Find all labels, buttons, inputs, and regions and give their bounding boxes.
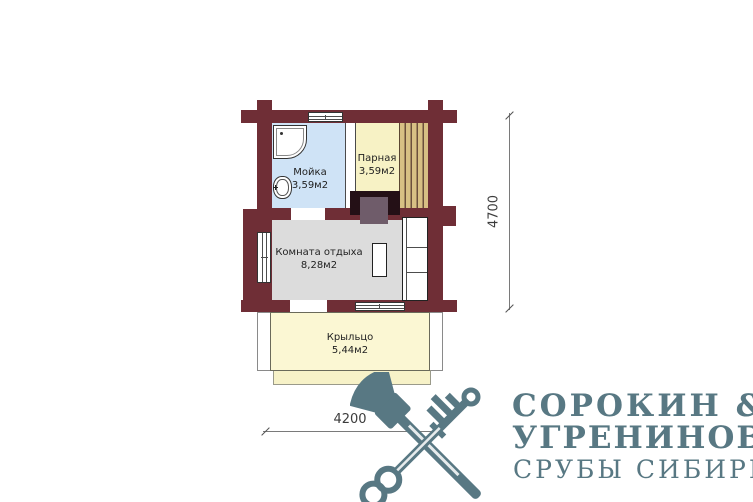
porch-side-left bbox=[257, 312, 271, 371]
wall-top bbox=[241, 110, 457, 123]
room-area: 5,44м2 bbox=[327, 344, 374, 357]
door-opening-moyka bbox=[291, 208, 325, 220]
room-label-moyka: Мойка 3,59м2 bbox=[292, 166, 328, 192]
room-area: 8,28м2 bbox=[275, 259, 362, 272]
door-opening-porch bbox=[290, 300, 327, 312]
log-strip-left-outer bbox=[243, 209, 257, 300]
window-left bbox=[257, 232, 271, 283]
room-name: Крыльцо bbox=[327, 331, 374, 344]
logo-line-1: СОРОКИН & bbox=[512, 388, 753, 424]
bench-planks bbox=[399, 123, 428, 208]
table bbox=[372, 243, 387, 277]
sink bbox=[273, 176, 292, 199]
room-area: 3,59м2 bbox=[292, 179, 328, 192]
dimension-height-label: 4700 bbox=[487, 180, 502, 244]
logo-line-3: СРУБЫ СИБИРИ bbox=[513, 455, 753, 484]
room-label-komnata: Комната отдыха 8,28м2 bbox=[275, 246, 362, 272]
log-end-mid-right bbox=[443, 206, 456, 226]
bed bbox=[402, 217, 428, 301]
dimension-line-vertical bbox=[509, 113, 510, 310]
porch-side-right bbox=[429, 312, 443, 371]
logo-line-2: УГРЕНИНОВ bbox=[512, 420, 753, 456]
room-name: Мойка bbox=[292, 166, 328, 179]
window-bottom bbox=[355, 302, 405, 311]
room-name: Комната отдыха bbox=[275, 246, 362, 259]
room-area: 3,59м2 bbox=[358, 165, 397, 178]
floor-plan-canvas: 4700 4200 bbox=[0, 0, 753, 502]
wall-right bbox=[428, 110, 443, 312]
room-label-parnaya: Парная 3,59м2 bbox=[358, 152, 397, 178]
room-label-kryltso: Крыльцо 5,44м2 bbox=[327, 331, 374, 357]
stove-firebox bbox=[360, 197, 388, 224]
room-name: Парная bbox=[358, 152, 397, 165]
logo-emblem bbox=[350, 372, 520, 502]
window-top bbox=[308, 112, 343, 122]
wall-bottom bbox=[241, 300, 457, 312]
logo bbox=[350, 372, 520, 502]
